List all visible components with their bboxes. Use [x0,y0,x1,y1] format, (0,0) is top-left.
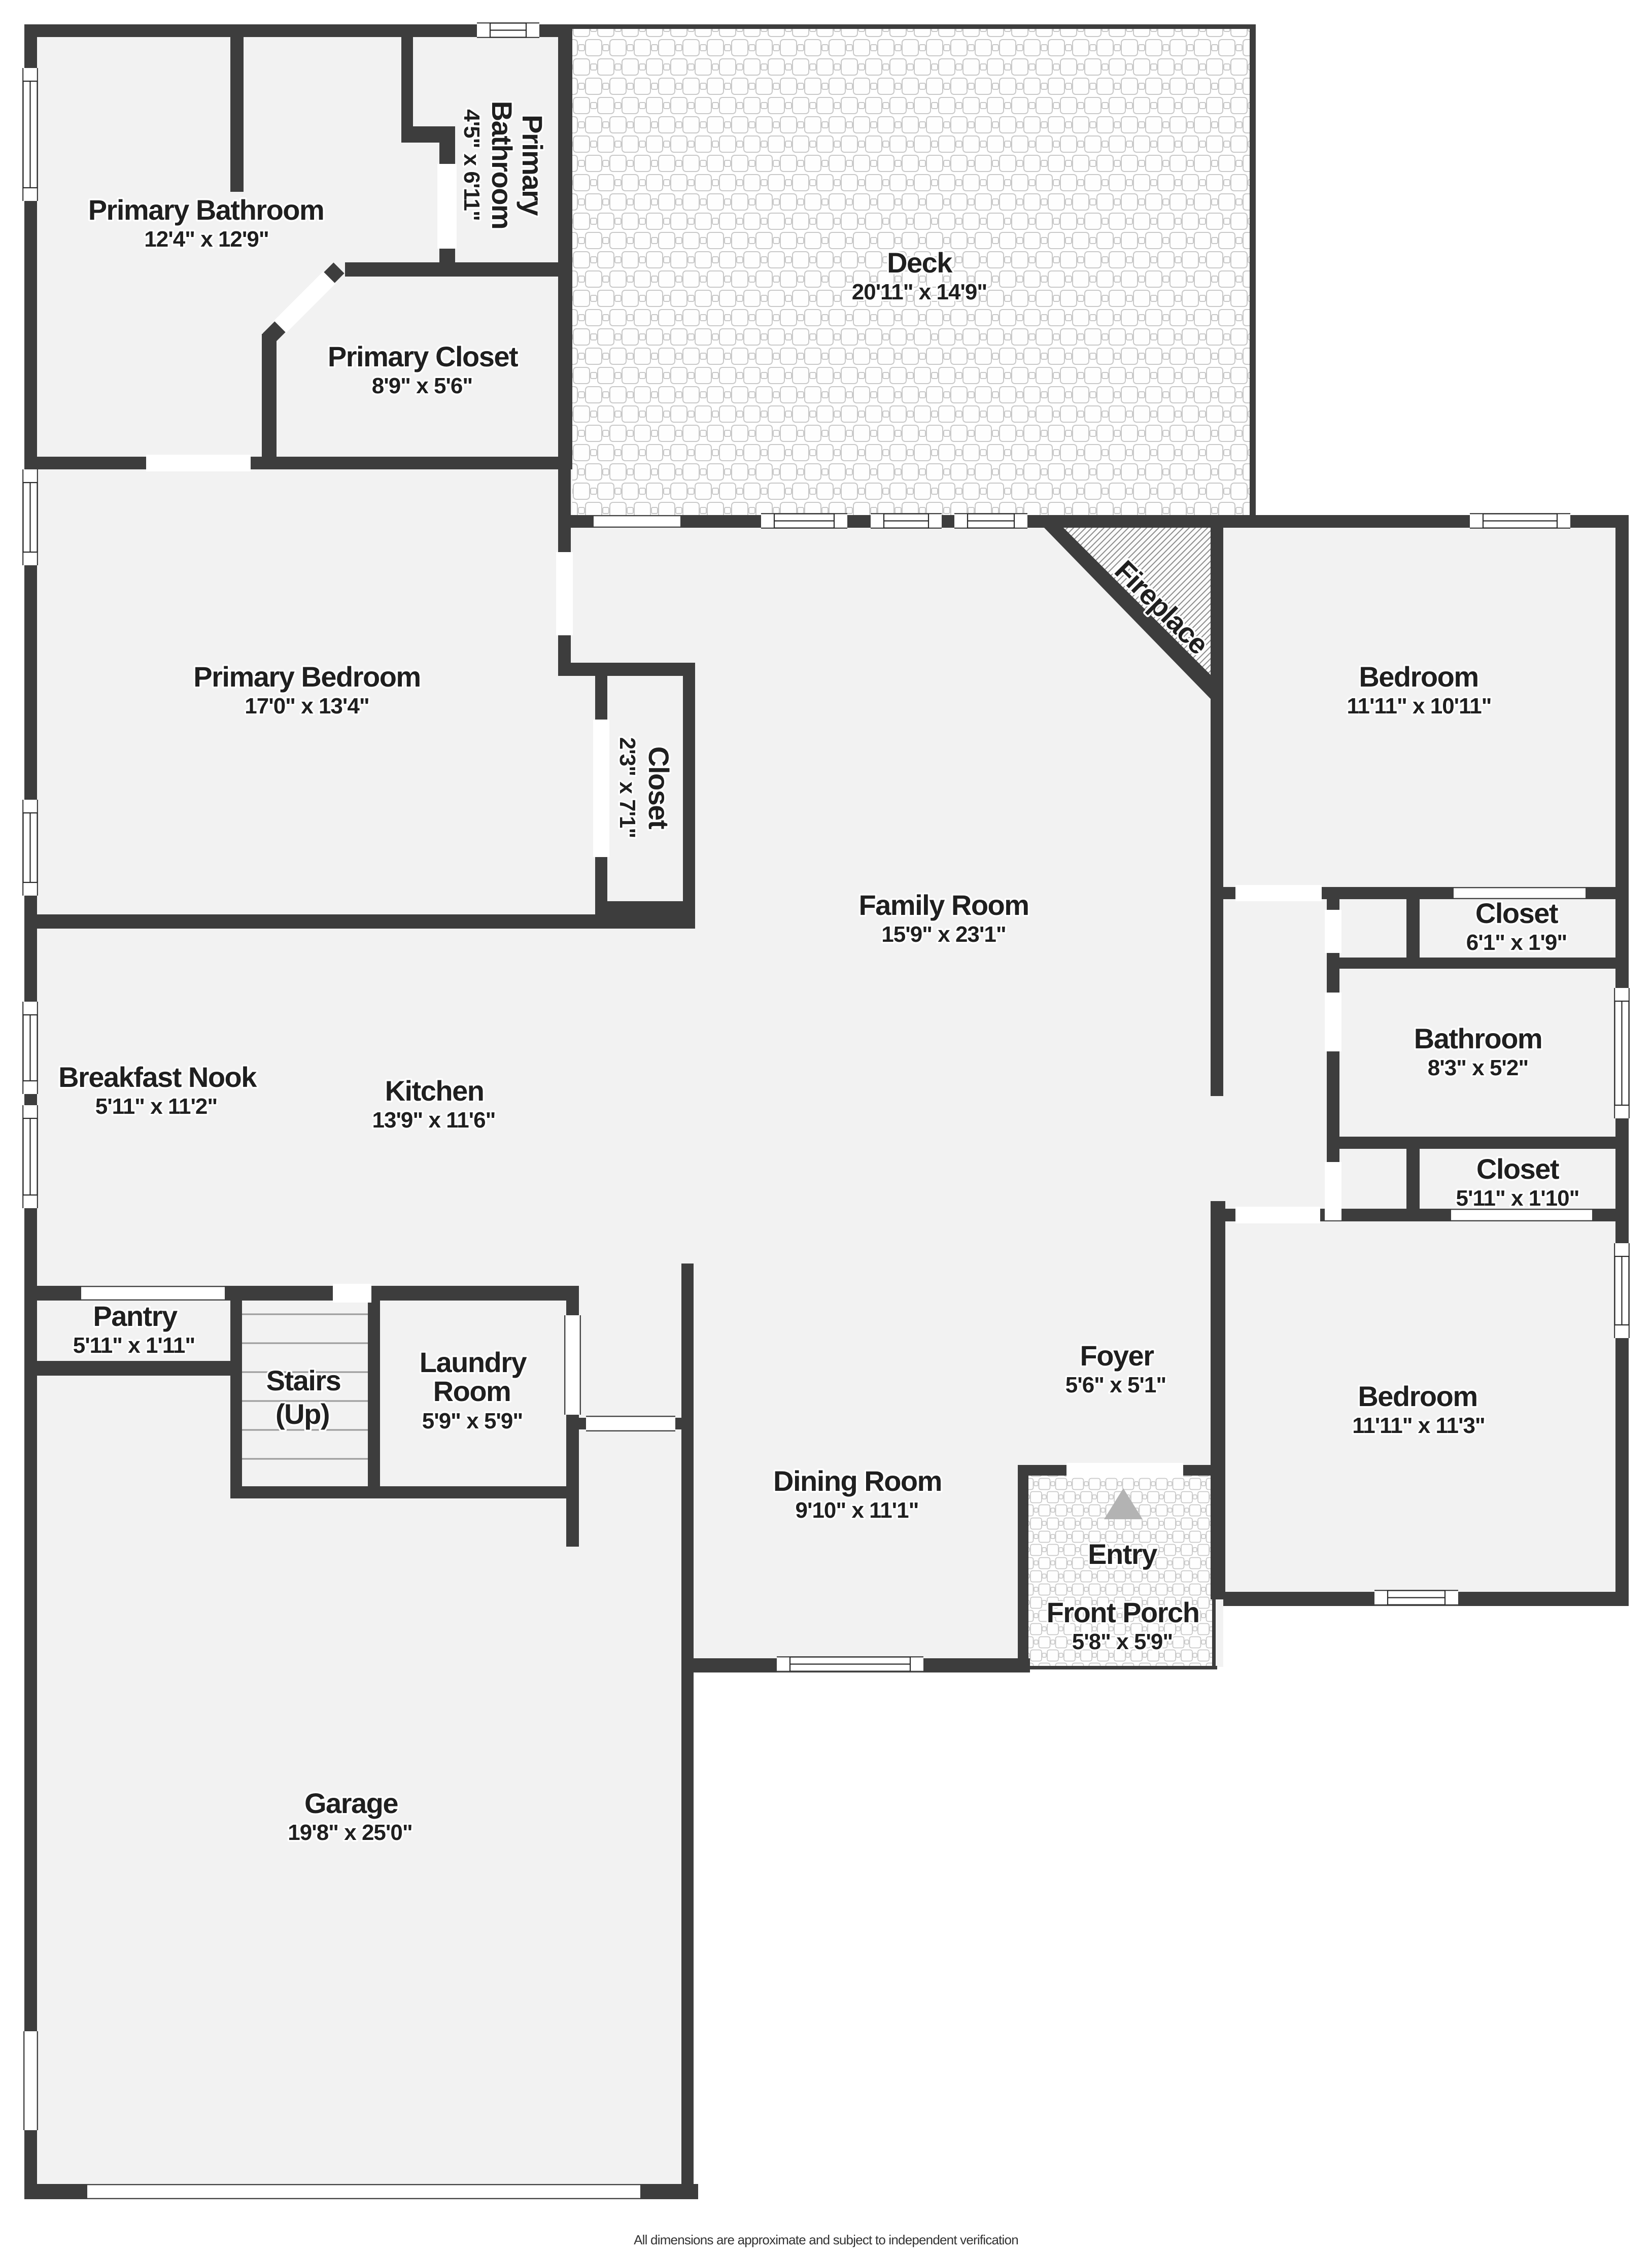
svg-text:8'3" x 5'2": 8'3" x 5'2" [1428,1055,1528,1080]
svg-text:Foyer: Foyer [1080,1340,1154,1372]
svg-text:12'4" x 12'9": 12'4" x 12'9" [144,227,268,252]
svg-text:Room: Room [433,1375,511,1407]
svg-text:5'8" x 5'9": 5'8" x 5'9" [1072,1629,1173,1654]
svg-text:5'6" x 5'1": 5'6" x 5'1" [1065,1373,1166,1397]
svg-text:4'5" x 6'11": 4'5" x 6'11" [459,109,484,221]
svg-text:2'3" x 7'1": 2'3" x 7'1" [615,737,640,838]
svg-text:Primary Bedroom: Primary Bedroom [193,661,420,693]
svg-text:Deck: Deck [887,247,953,279]
svg-text:Primary Bathroom: Primary Bathroom [88,194,324,226]
svg-text:Closet: Closet [1475,897,1558,929]
svg-text:6'1" x 1'9": 6'1" x 1'9" [1466,930,1567,955]
svg-text:11'11" x 11'3": 11'11" x 11'3" [1352,1413,1485,1438]
svg-text:5'11" x 1'11": 5'11" x 1'11" [73,1333,195,1358]
svg-text:Pantry: Pantry [93,1300,178,1332]
svg-text:Primary Closet: Primary Closet [328,340,518,372]
svg-text:Breakfast Nook: Breakfast Nook [58,1061,257,1093]
svg-text:Closet: Closet [1476,1153,1559,1185]
svg-text:Dining Room: Dining Room [773,1465,942,1497]
svg-text:Bathroom: Bathroom [486,101,518,229]
svg-text:20'11" x 14'9": 20'11" x 14'9" [852,280,987,304]
svg-text:Front Porch: Front Porch [1047,1596,1199,1628]
svg-text:All dimensions are approximate: All dimensions are approximate and subje… [634,2232,1018,2247]
svg-text:11'11" x 10'11": 11'11" x 10'11" [1347,694,1491,719]
svg-text:15'9" x 23'1": 15'9" x 23'1" [881,922,1006,947]
svg-text:8'9" x 5'6": 8'9" x 5'6" [372,373,472,398]
svg-text:Stairs: Stairs [266,1364,341,1396]
svg-text:Garage: Garage [304,1787,398,1819]
svg-text:19'8" x 25'0": 19'8" x 25'0" [288,1820,412,1845]
svg-text:(Up): (Up) [276,1398,329,1430]
svg-text:5'11" x 1'10": 5'11" x 1'10" [1456,1186,1579,1211]
svg-text:9'10" x 11'1": 9'10" x 11'1" [796,1498,919,1523]
svg-text:Closet: Closet [643,746,675,829]
svg-text:Kitchen: Kitchen [385,1075,484,1107]
svg-text:Family Room: Family Room [858,889,1028,921]
svg-text:Bedroom: Bedroom [1359,661,1478,693]
svg-text:Primary: Primary [517,115,548,216]
svg-text:Bedroom: Bedroom [1358,1380,1477,1412]
svg-text:Entry: Entry [1088,1538,1157,1570]
svg-text:5'11" x 11'2": 5'11" x 11'2" [95,1094,218,1119]
svg-text:13'9" x 11'6": 13'9" x 11'6" [372,1108,496,1133]
svg-text:17'0" x 13'4": 17'0" x 13'4" [245,694,369,719]
svg-text:5'9" x 5'9": 5'9" x 5'9" [422,1409,523,1433]
svg-text:Laundry: Laundry [420,1346,527,1378]
svg-text:Bathroom: Bathroom [1414,1022,1542,1054]
